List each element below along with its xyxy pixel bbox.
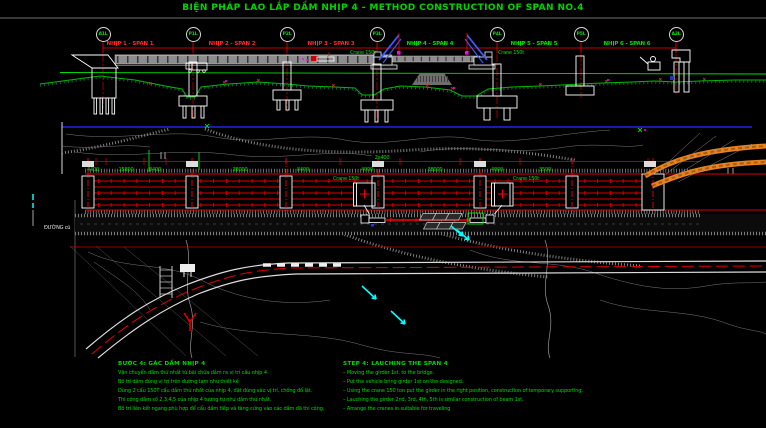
span-label-4: NHỊP 4 - SPAN 4 (407, 41, 454, 47)
notes-vi-item: Bố trí liên kết ngang phù hợp để cẩu dầm… (118, 405, 324, 414)
plan-dim-5: 4000 (361, 167, 373, 173)
notes-vi-title: BƯỚC 4: GÁC DẦM NHỊP 4 (118, 361, 324, 367)
abutment-marker (670, 76, 674, 80)
notes-vi-item: Dùng 2 cẩu 150T cẩu dầm thứ nhất của nhị… (118, 387, 324, 396)
pier-bubble-p1l: P1L (186, 27, 201, 42)
pier-label: P5L (577, 32, 586, 37)
plan-dimension-line (85, 158, 700, 165)
lifted-girder-span4 (386, 56, 480, 62)
notes-en-item: – Using the crane 150 ton put the girder… (343, 387, 583, 396)
plan-view (33, 122, 766, 358)
plan-dim-7: 38000 (428, 167, 443, 173)
plan-dim-1: 15800 (119, 167, 134, 173)
plan-dim-8: 4000 (491, 167, 503, 173)
embankment-under-span4 (412, 73, 452, 85)
notes-vi-item: Vận chuyển dầm thứ nhất từ bãi chứa dầm … (118, 369, 324, 378)
plan-dim-9: 3500 (539, 167, 551, 173)
span-label-6: NHỊP 6 - SPAN 6 (604, 41, 651, 47)
crane-label-plan-right: Crane 150t (513, 176, 539, 182)
pier-label: P4L (493, 32, 502, 37)
drawing-title: BIỆN PHÁP LAO LẮP DẦM NHỊP 4 - METHOD CO… (182, 3, 583, 13)
pier-label: P2L (283, 32, 292, 37)
plan-dim-3: 38000 (233, 167, 248, 173)
notes-vi-item: Thi công dầm số 2,3,4,5 của nhịp 4 tương… (118, 396, 324, 405)
notes-vietnamese: BƯỚC 4: GÁC DẦM NHỊP 4 Vận chuyển dầm th… (118, 361, 324, 414)
notes-vi-item: Bố trí dầm đúng vị trí trên đường tạm nh… (118, 378, 324, 387)
pier-label: A2L (671, 32, 680, 37)
green-cross-markers (205, 124, 646, 132)
notes-en-title: STEP 4: LAUCHING THE SPAN 4 (343, 361, 583, 367)
crane-label-plan-left: Crane 150t (333, 176, 359, 182)
crane-label-elevation-left: Crane 150t (350, 50, 376, 56)
haul-road-under-bridge (70, 214, 766, 247)
pier-label: P3L (373, 32, 382, 37)
notes-en-item: – Moving the girder 1st. to the bridge. (343, 369, 583, 378)
plan-dim-6: 2x400 (375, 155, 390, 161)
old-road-label: ĐƯỜNG cũ (44, 225, 70, 231)
pier-bubble-p2l: P2L (280, 27, 295, 42)
ground-line (40, 76, 766, 99)
span-label-2: NHỊP 2 - SPAN 2 (209, 41, 256, 47)
crane-label-elevation-right: Crane 150t (498, 50, 524, 56)
plan-dim-0: 4400 (87, 167, 99, 173)
plan-dim-4: 8400 (297, 167, 309, 173)
grade-line (60, 73, 766, 75)
pier-bubble-p5l: P5L (574, 27, 589, 42)
notes-en-item: – Put the vehicle bring girder 1st on th… (343, 378, 583, 387)
pier-bubble-p3l: P3L (370, 27, 385, 42)
span-label-1: NHỊP 1 - SPAN 1 (107, 41, 154, 47)
pier-bubble-p4l: P4L (490, 27, 505, 42)
contour-lines (62, 130, 766, 358)
pier-label: A1L (98, 32, 107, 37)
erected-deck-spans-1-3 (115, 55, 392, 66)
notes-en-item: – Arrange the cranes in suitable for tra… (343, 405, 583, 414)
plan-dim-2: 8400 (149, 167, 161, 173)
span-label-3: NHỊP 3 - SPAN 3 (308, 41, 355, 47)
notes-en-item: – Lauching the girder 2nd, 3rd, 4th, 5th… (343, 396, 583, 405)
pier-label: P1L (189, 32, 198, 37)
pier-bubble-a2l: A2L (669, 27, 684, 42)
flow-arrows (362, 226, 469, 324)
notes-english: STEP 4: LAUCHING THE SPAN 4 – Moving the… (343, 361, 583, 414)
pier-bubble-a1l: A1L (96, 27, 111, 42)
span-label-5: NHỊP 5 - SPAN 5 (511, 41, 558, 47)
cad-drawing-canvas: BIỆN PHÁP LAO LẮP DẦM NHỊP 4 - METHOD CO… (0, 0, 766, 428)
